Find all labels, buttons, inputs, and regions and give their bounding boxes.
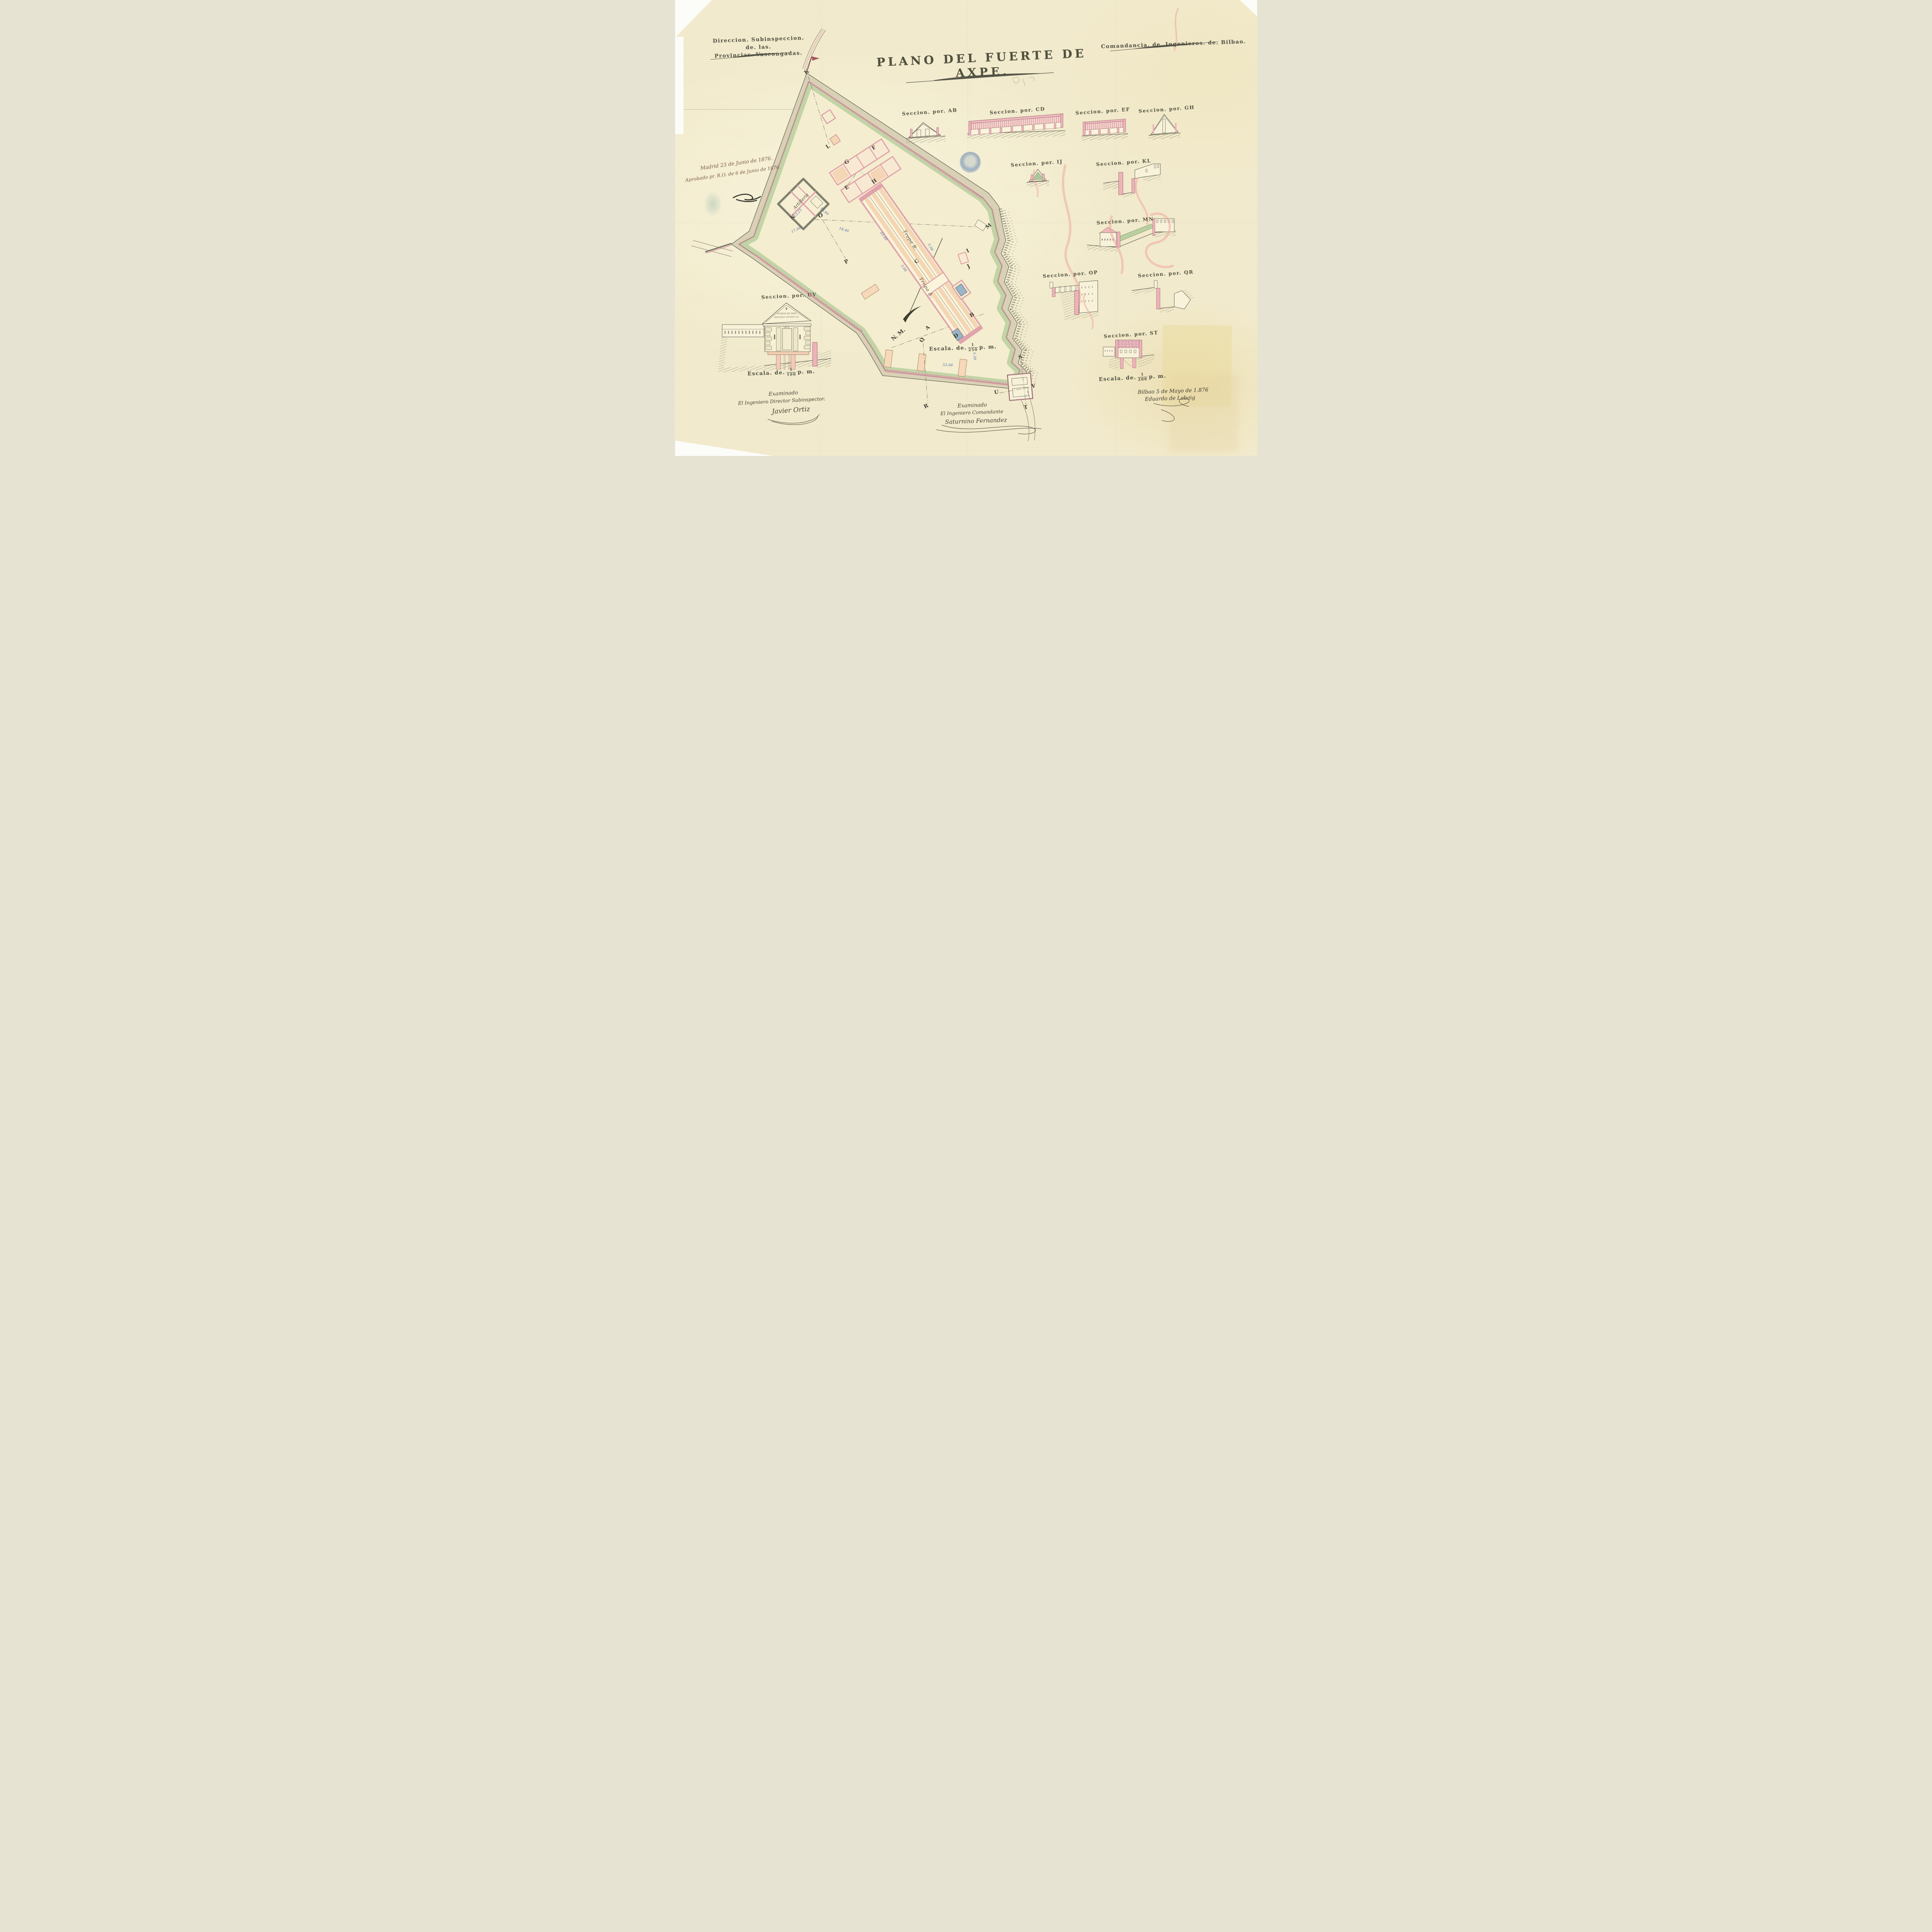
section-gh-drawing: [1149, 114, 1180, 140]
page-title-line2: AXPE.: [955, 65, 1009, 80]
section-ij-drawing: [1027, 169, 1049, 187]
crown-icon: ♛: [785, 307, 788, 310]
uv-scale-denominator: 100: [786, 372, 796, 376]
uv-scale-prefix: Escala. de.: [747, 369, 785, 377]
sections-scale-suffix: p. m.: [1148, 373, 1166, 380]
section-uv-drawing: [718, 303, 831, 372]
uv-scale-suffix: p. m.: [797, 368, 815, 375]
plan-letter-u: U: [993, 389, 999, 396]
gate-inscription-line1: FUERTE DE AXPE: [777, 313, 796, 315]
section-st-drawing: [1103, 340, 1154, 370]
dimension-label: 5,30: [972, 352, 976, 360]
scan-edge-left-strip: [675, 37, 684, 134]
uv-scale-fraction: 1100: [786, 368, 796, 377]
plan-scale-prefix: Escala. de.: [929, 345, 967, 352]
uv-scale-numerator: 1: [786, 368, 796, 372]
sections-scale-prefix: Escala. de.: [1099, 374, 1136, 383]
issuing-office-line2: de. las.: [745, 44, 771, 51]
section-ef-drawing: [1082, 119, 1128, 141]
gate-complex: [1007, 373, 1033, 401]
sections-scale-fraction: 1200: [1138, 372, 1147, 381]
plan-scale-suffix: p. m.: [979, 344, 997, 350]
section-kl-drawing: [1103, 164, 1160, 198]
plan-letter-v: V: [1031, 383, 1036, 389]
plan-scale-fraction: 1250: [968, 343, 978, 352]
section-op-drawing: [1050, 281, 1099, 321]
plan-scale-numerator: 1: [968, 343, 978, 348]
section-qr-drawing: [1132, 281, 1194, 313]
plan-scale-denominator: 250: [968, 347, 978, 352]
section-cd-drawing: [967, 114, 1065, 139]
faded-teal-stamp: [704, 192, 722, 216]
gate-inscription-line3: 1875.: [783, 327, 790, 329]
fort-plan: [691, 29, 1037, 441]
section-ab-drawing: [906, 122, 946, 144]
sections-scale-denominator: 200: [1138, 377, 1147, 382]
scanned-plan-sheet: Direccion. Subinspeccion. de. las. Provi…: [675, 0, 1257, 456]
dimension-label: 52,00: [942, 363, 953, 367]
examined-center-heading: Examinado: [957, 402, 987, 409]
